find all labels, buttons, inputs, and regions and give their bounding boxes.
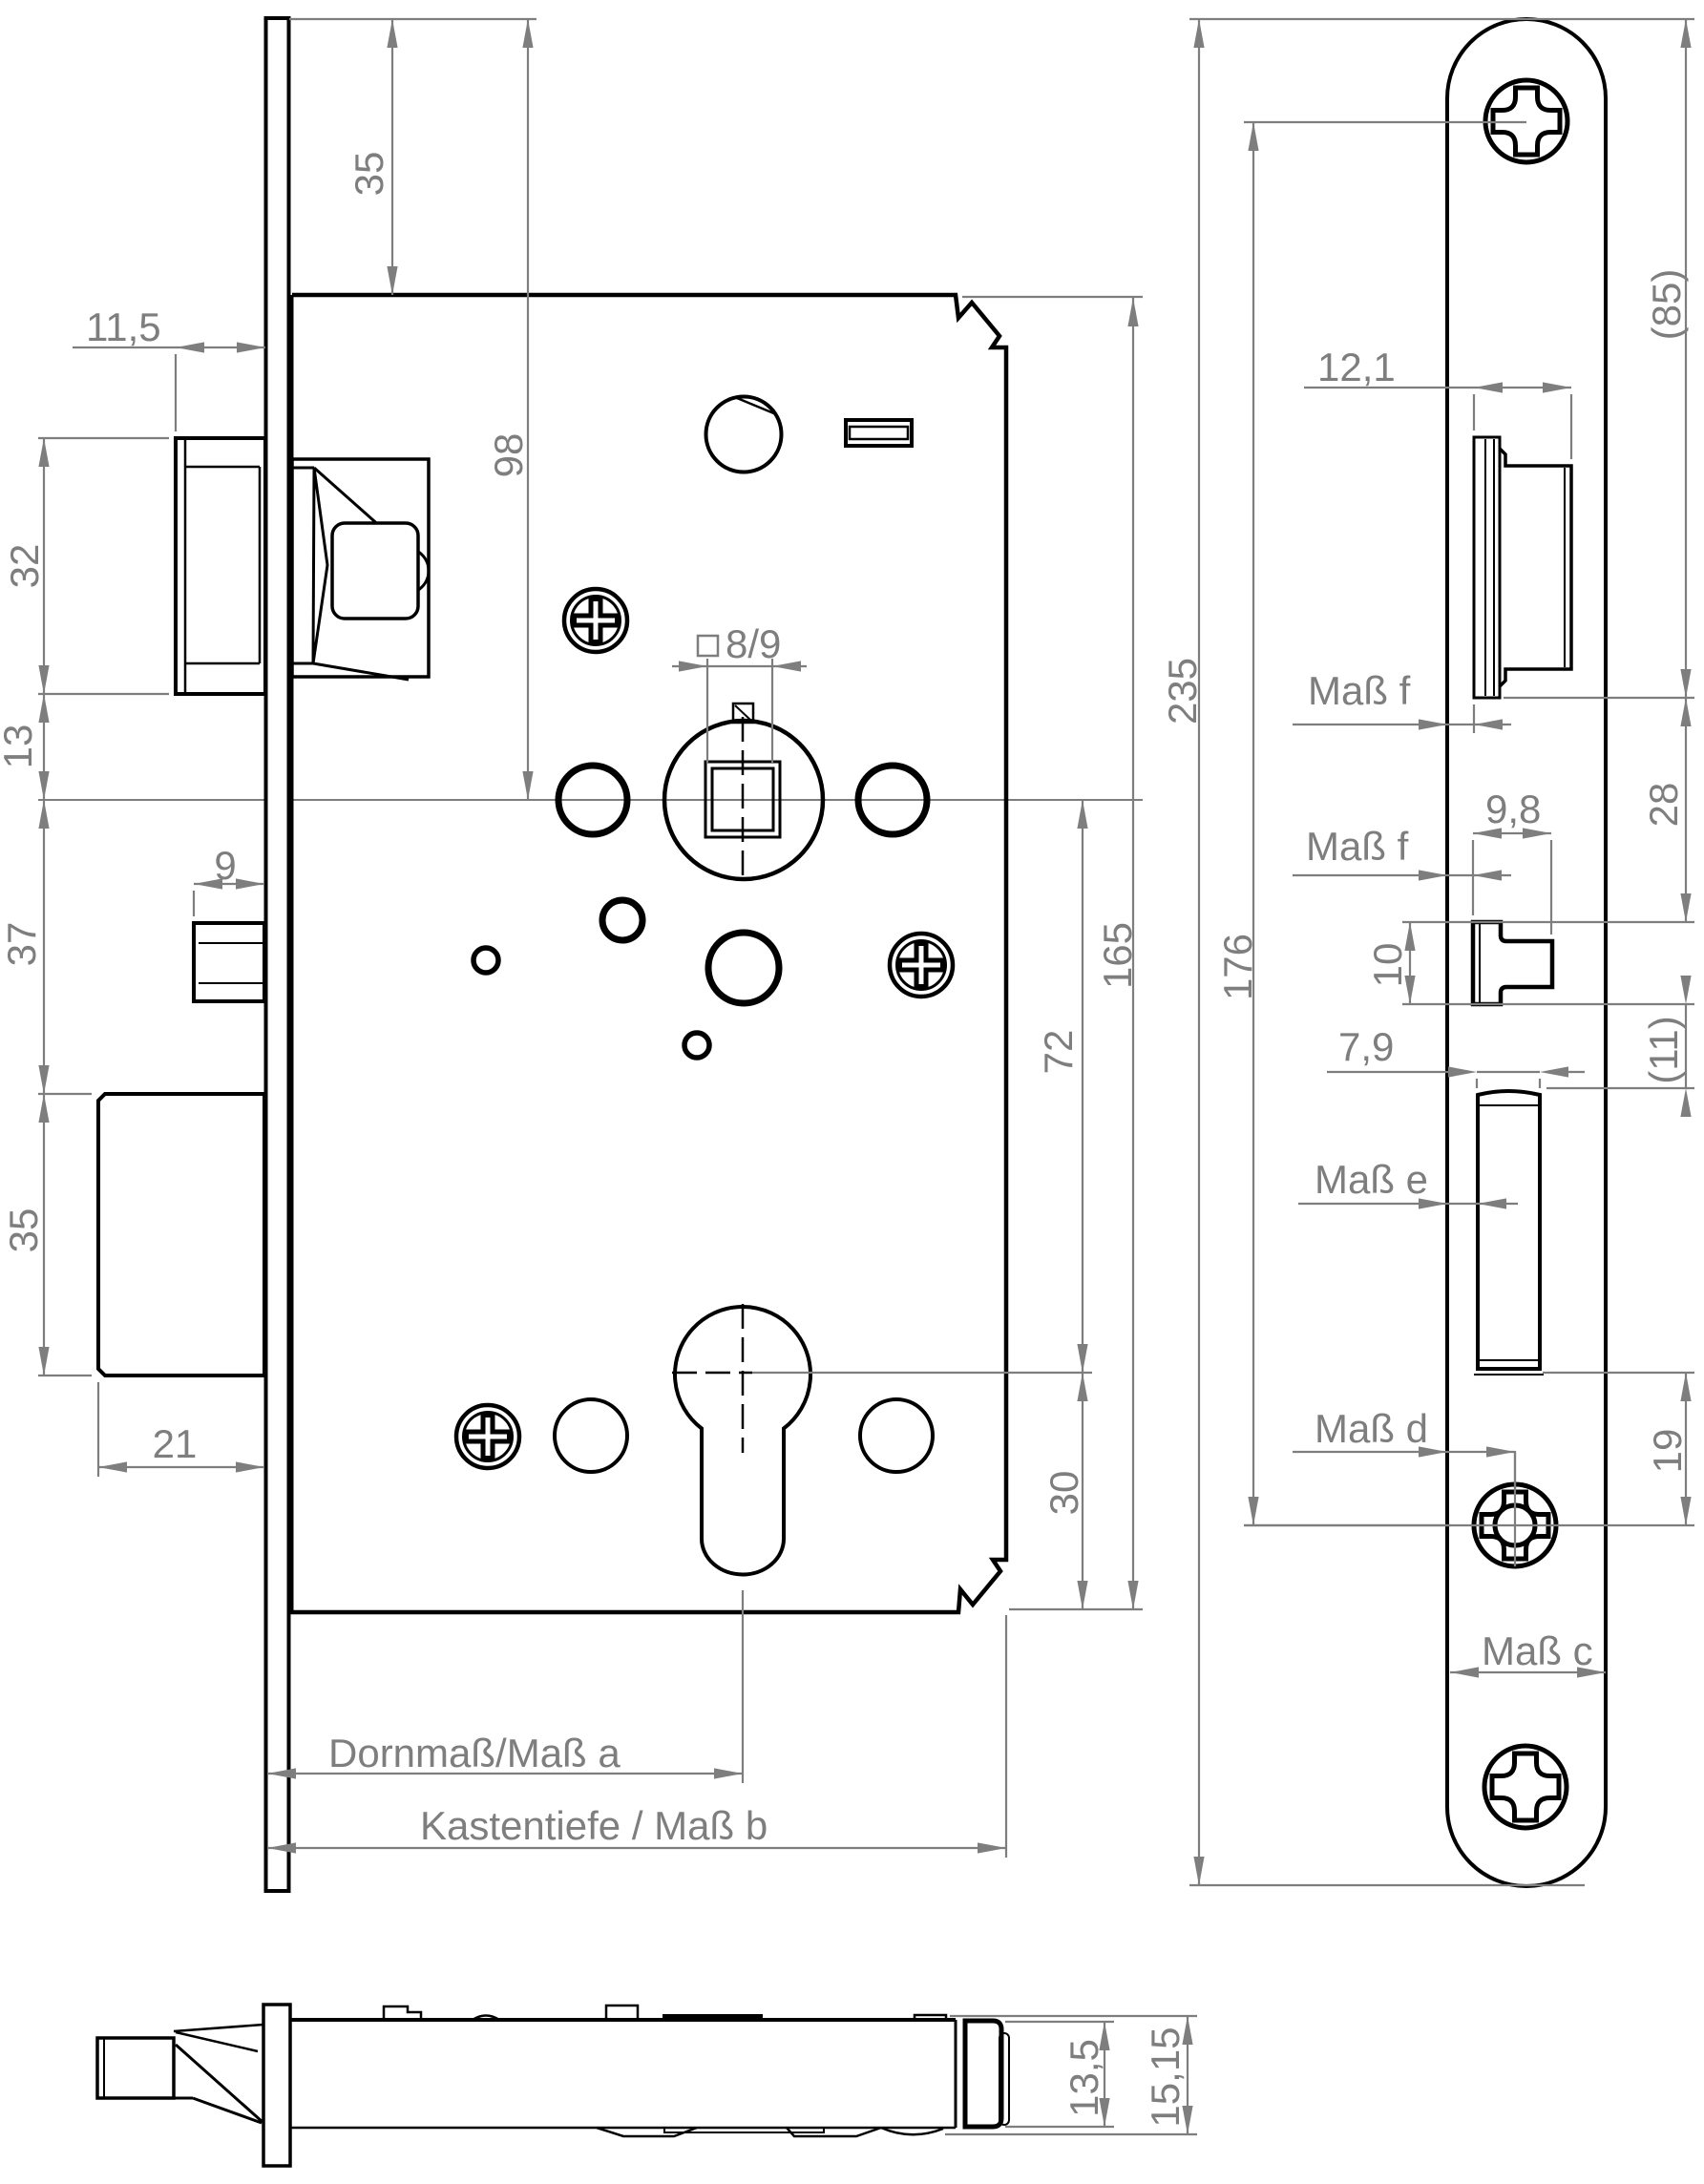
svg-text:Maß c: Maß c bbox=[1482, 1628, 1593, 1673]
svg-text:9: 9 bbox=[214, 843, 236, 888]
svg-text:Maß d: Maß d bbox=[1315, 1406, 1428, 1451]
svg-text:165: 165 bbox=[1095, 922, 1140, 989]
svg-text:15,15: 15,15 bbox=[1143, 2026, 1188, 2127]
svg-text:9,8: 9,8 bbox=[1485, 787, 1541, 831]
svg-text:28: 28 bbox=[1641, 783, 1686, 828]
svg-text:7,9: 7,9 bbox=[1338, 1024, 1394, 1069]
svg-text:21: 21 bbox=[153, 1421, 198, 1466]
svg-text:13,5: 13,5 bbox=[1062, 2039, 1106, 2117]
svg-text:Kastentiefe / Maß b: Kastentiefe / Maß b bbox=[420, 1803, 768, 1848]
svg-text:35: 35 bbox=[347, 152, 391, 197]
svg-text:Maß f: Maß f bbox=[1308, 668, 1411, 713]
svg-text:Maß f: Maß f bbox=[1306, 824, 1409, 869]
svg-text:(11): (11) bbox=[1641, 1016, 1686, 1084]
svg-text:72: 72 bbox=[1036, 1030, 1081, 1075]
svg-text:98: 98 bbox=[486, 433, 531, 478]
svg-text:10: 10 bbox=[1365, 943, 1410, 988]
svg-text:19: 19 bbox=[1645, 1429, 1690, 1474]
svg-text:11,5: 11,5 bbox=[86, 304, 161, 349]
svg-text:32: 32 bbox=[2, 544, 47, 589]
svg-text:30: 30 bbox=[1041, 1471, 1086, 1516]
svg-text:13: 13 bbox=[0, 724, 40, 769]
svg-text:8/9: 8/9 bbox=[726, 621, 781, 666]
svg-text:Dornmaß/Maß a: Dornmaß/Maß a bbox=[328, 1731, 621, 1775]
svg-text:Maß e: Maß e bbox=[1315, 1157, 1428, 1202]
svg-text:(85): (85) bbox=[1644, 269, 1689, 341]
svg-text:37: 37 bbox=[0, 922, 44, 967]
svg-text:12,1: 12,1 bbox=[1317, 345, 1396, 389]
svg-text:176: 176 bbox=[1215, 934, 1260, 1000]
svg-text:235: 235 bbox=[1160, 658, 1205, 724]
svg-text:35: 35 bbox=[1, 1208, 46, 1253]
